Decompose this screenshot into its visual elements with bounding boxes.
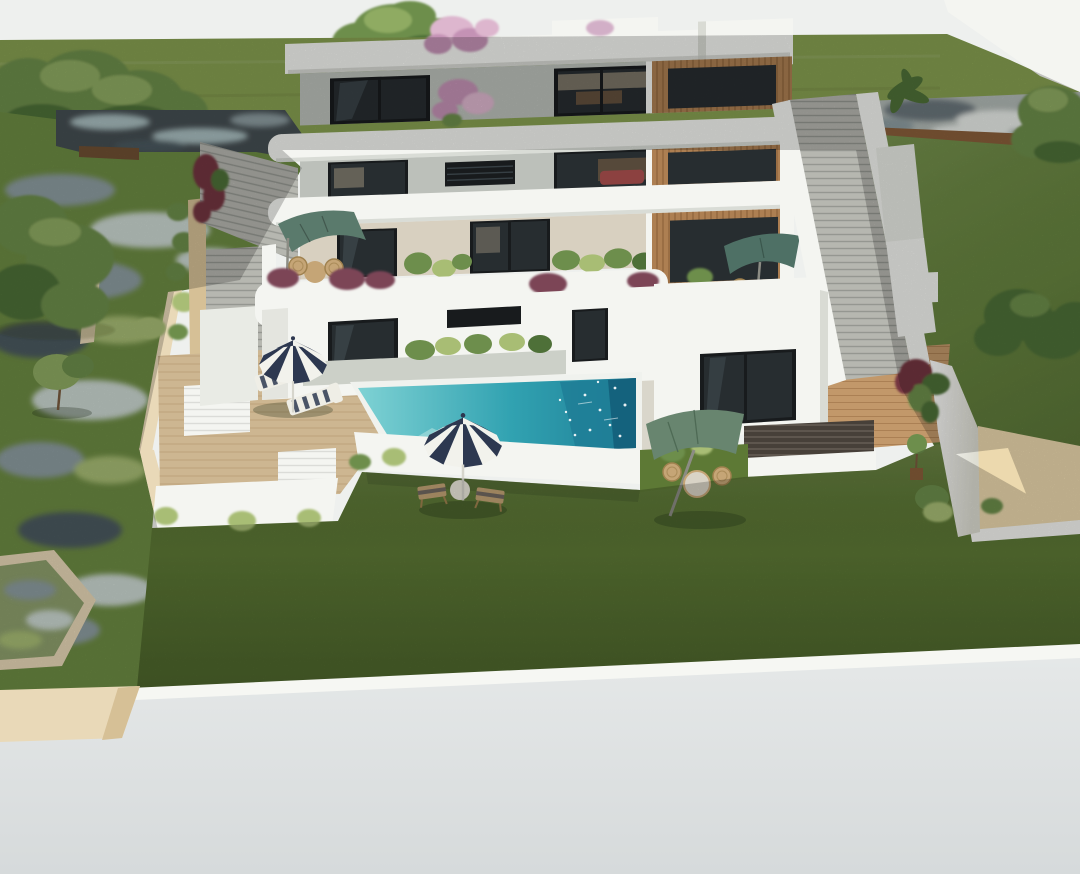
architectural-render: )	[0, 0, 1080, 874]
window-floor2-right	[554, 149, 652, 190]
retaining-wall-bottom-left	[0, 686, 140, 742]
window-floor2-left	[328, 160, 408, 199]
render-canvas: )	[0, 0, 1080, 874]
villa-door	[572, 308, 608, 362]
terrace-door-right	[470, 219, 550, 274]
louvre-window	[445, 160, 515, 186]
brick-base	[744, 420, 876, 479]
red-sofa	[600, 170, 644, 186]
